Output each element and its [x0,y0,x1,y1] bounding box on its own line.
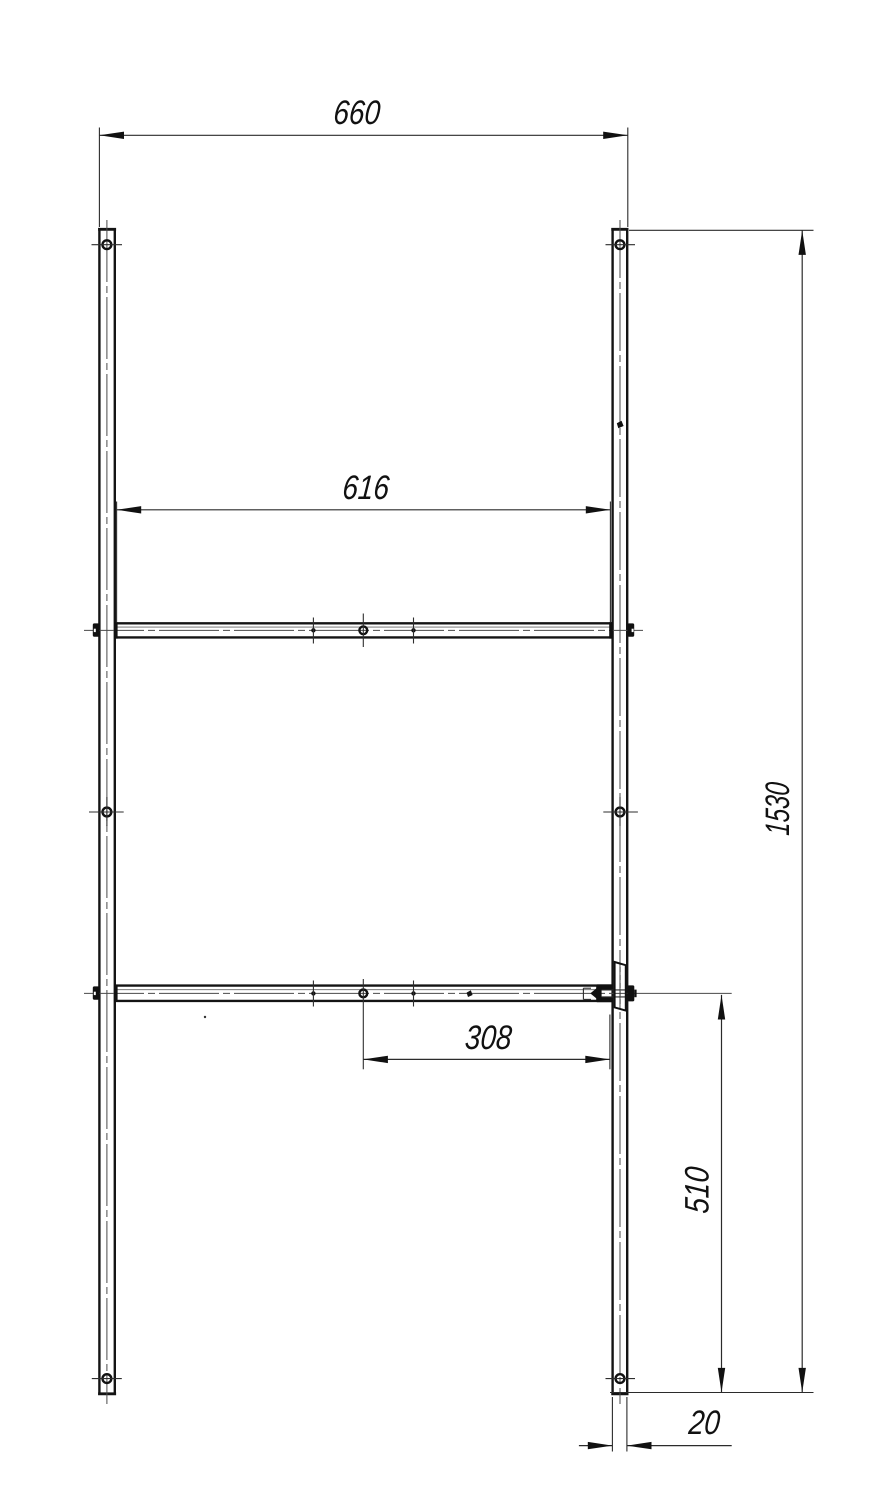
svg-text:616: 616 [341,468,391,506]
svg-text:20: 20 [686,1403,722,1441]
svg-text:1530: 1530 [759,780,797,836]
svg-text:510: 510 [678,1165,716,1215]
svg-text:308: 308 [464,1018,514,1056]
svg-text:660: 660 [332,93,382,131]
